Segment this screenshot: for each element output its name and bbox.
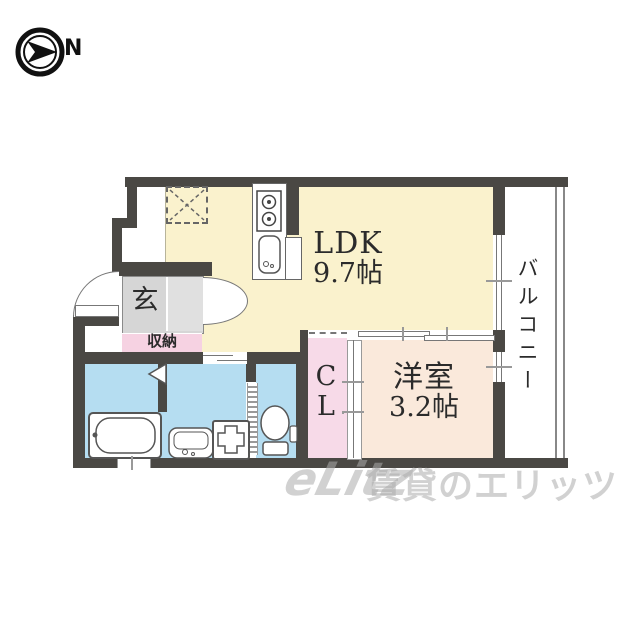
closet-top-dashed-opening <box>309 332 347 339</box>
kitchen-side-strip <box>135 187 166 263</box>
balcony-label: バルコニー <box>516 212 538 442</box>
door-tick <box>402 327 404 341</box>
western-room-label: 洋室 3.2帖 <box>374 362 474 422</box>
washroom-door-opening <box>203 352 247 364</box>
closet-char-l: L <box>317 392 335 422</box>
bath-folding-door-icon <box>146 362 168 386</box>
western-room-name: 洋室 <box>374 362 474 394</box>
washing-machine-pan-icon <box>212 420 250 460</box>
compass-north-label: N <box>64 36 82 61</box>
door-line <box>217 360 247 361</box>
window-line <box>501 235 502 330</box>
wall-ldk-left <box>127 177 137 225</box>
wall-genkan-top <box>112 262 212 276</box>
refrigerator-space-icon <box>166 186 208 224</box>
closet-sliding-door <box>347 340 362 460</box>
window-line <box>496 235 497 330</box>
window-tick <box>131 456 133 470</box>
ldk-floor-lower <box>202 330 300 352</box>
window-ldk-balcony <box>493 235 505 330</box>
floor-plan-page: N <box>0 0 640 640</box>
toilet-icon <box>258 404 300 458</box>
entrance-door-leaf <box>75 305 119 317</box>
door-tick <box>342 381 364 383</box>
ldk-name: LDK <box>298 228 398 260</box>
wall-left <box>73 315 85 468</box>
wall-toilet-left <box>246 364 256 382</box>
door-line <box>203 355 233 356</box>
wall-washroom-top <box>85 352 303 364</box>
western-room-size: 3.2帖 <box>374 394 474 422</box>
storage-label: 収納 <box>122 334 202 350</box>
wall-closet-left <box>300 330 308 458</box>
door-tick <box>446 327 448 341</box>
bathtub-icon <box>88 412 162 459</box>
stove-icon <box>256 190 282 232</box>
closet-char-c: C <box>316 362 337 392</box>
door-line <box>353 340 354 458</box>
ldk-size: 9.7帖 <box>298 260 398 288</box>
wall-right-lower <box>493 382 505 458</box>
window-tick <box>486 366 512 368</box>
wall-kitchen-stub <box>285 185 299 235</box>
entrance-label: 玄 <box>130 287 160 315</box>
sink-icon <box>258 235 282 275</box>
washbasin-icon <box>168 427 214 459</box>
door-tick <box>342 411 364 413</box>
ldk-label: LDK 9.7帖 <box>298 228 398 288</box>
wall-right-upper <box>493 187 505 235</box>
compass-icon <box>14 24 70 80</box>
watermark-text: 賃貸のエリッツ <box>366 458 618 509</box>
closet-label: C L <box>312 362 340 421</box>
window-bath <box>117 458 151 468</box>
window-tick <box>486 280 512 282</box>
entrance-hall-step <box>166 277 203 331</box>
sliding-door-panel <box>424 335 495 341</box>
wall-right-mid <box>493 330 505 352</box>
sliding-door-panel <box>358 331 430 337</box>
balcony-railing-line <box>555 187 557 458</box>
balcony-railing-line <box>563 187 565 458</box>
